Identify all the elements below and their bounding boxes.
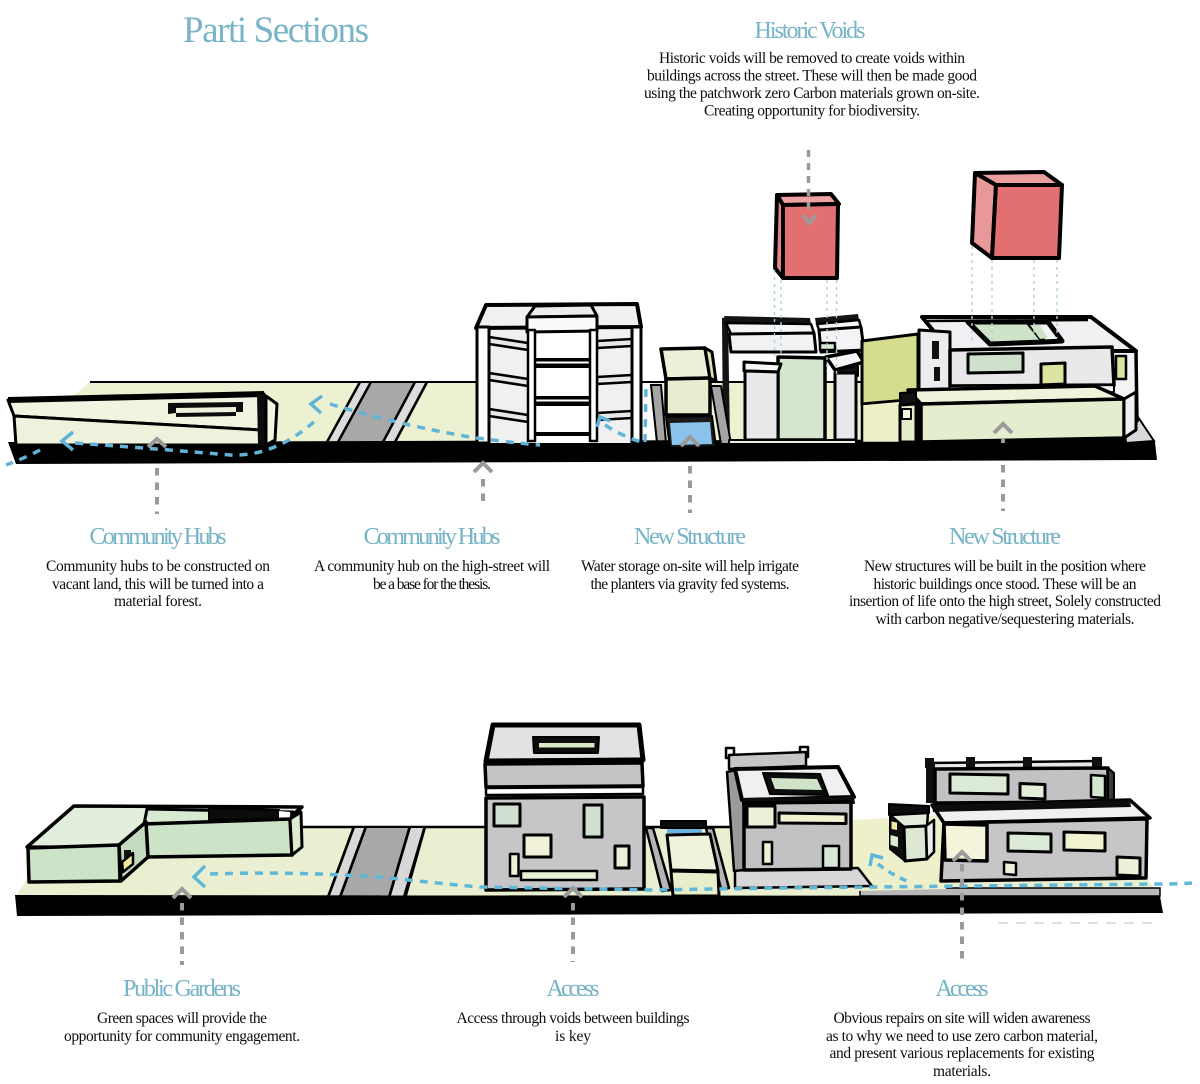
svg-text:Access: Access [547, 976, 600, 1002]
svg-text:Creating opportunity for biodi: Creating opportunity for biodiversity. [704, 103, 920, 120]
svg-text:Historic Voids: Historic Voids [755, 18, 866, 44]
svg-text:opportunity for community enga: opportunity for community engagement. [64, 1028, 300, 1045]
svg-text:Water storage on-site will hel: Water storage on-site will help irrigate [581, 558, 799, 575]
svg-text:New structures will be built i: New structures will be built in the posi… [864, 558, 1146, 575]
svg-text:is key: is key [555, 1028, 591, 1045]
svg-text:Access through voids between b: Access through voids between buildings [457, 1010, 690, 1027]
svg-text:A community hub on the high-st: A community hub on the high-street will [314, 558, 550, 575]
svg-text:Obvious repairs on site will w: Obvious repairs on site will widen aware… [834, 1010, 1091, 1027]
svg-text:historic buildings once stood.: historic buildings once stood. These wil… [874, 576, 1137, 593]
svg-text:using the patchwork zero Carbo: using the patchwork zero Carbon material… [644, 85, 980, 102]
svg-text:vacant land, this will be turn: vacant land, this will be turned into a [52, 576, 264, 593]
svg-text:Parti Sections: Parti Sections [183, 10, 369, 51]
svg-text:Community Hubs: Community Hubs [90, 524, 227, 550]
svg-text:Historic voids will be removed: Historic voids will be removed to create… [659, 50, 965, 67]
svg-text:Access: Access [936, 976, 989, 1002]
svg-text:Community hubs to be construct: Community hubs to be constructed on [46, 558, 270, 575]
svg-text:with carbon negative/sequester: with carbon negative/sequestering materi… [876, 611, 1135, 628]
svg-text:buildings across the street. T: buildings across the street. These will … [647, 68, 977, 85]
svg-text:New Structure: New Structure [949, 524, 1061, 550]
svg-text:material forest.: material forest. [114, 593, 202, 610]
svg-text:materials.: materials. [933, 1063, 991, 1080]
svg-text:the planters via gravity fed s: the planters via gravity fed systems. [591, 576, 790, 593]
svg-text:Public Gardens: Public Gardens [123, 976, 241, 1002]
svg-text:New Structure: New Structure [634, 524, 746, 550]
svg-text:be a base for the thesis.: be a base for the thesis. [373, 576, 491, 593]
svg-text:as to why we need to use zero: as to why we need to use zero carbon mat… [826, 1028, 1098, 1045]
svg-text:Community Hubs: Community Hubs [364, 524, 501, 550]
svg-text:insertion of life onto the hig: insertion of life onto the high street, … [849, 593, 1161, 610]
svg-text:and present various replacemen: and present various replacements for exi… [830, 1045, 1095, 1062]
svg-text:Green spaces will provide the: Green spaces will provide the [97, 1010, 267, 1027]
